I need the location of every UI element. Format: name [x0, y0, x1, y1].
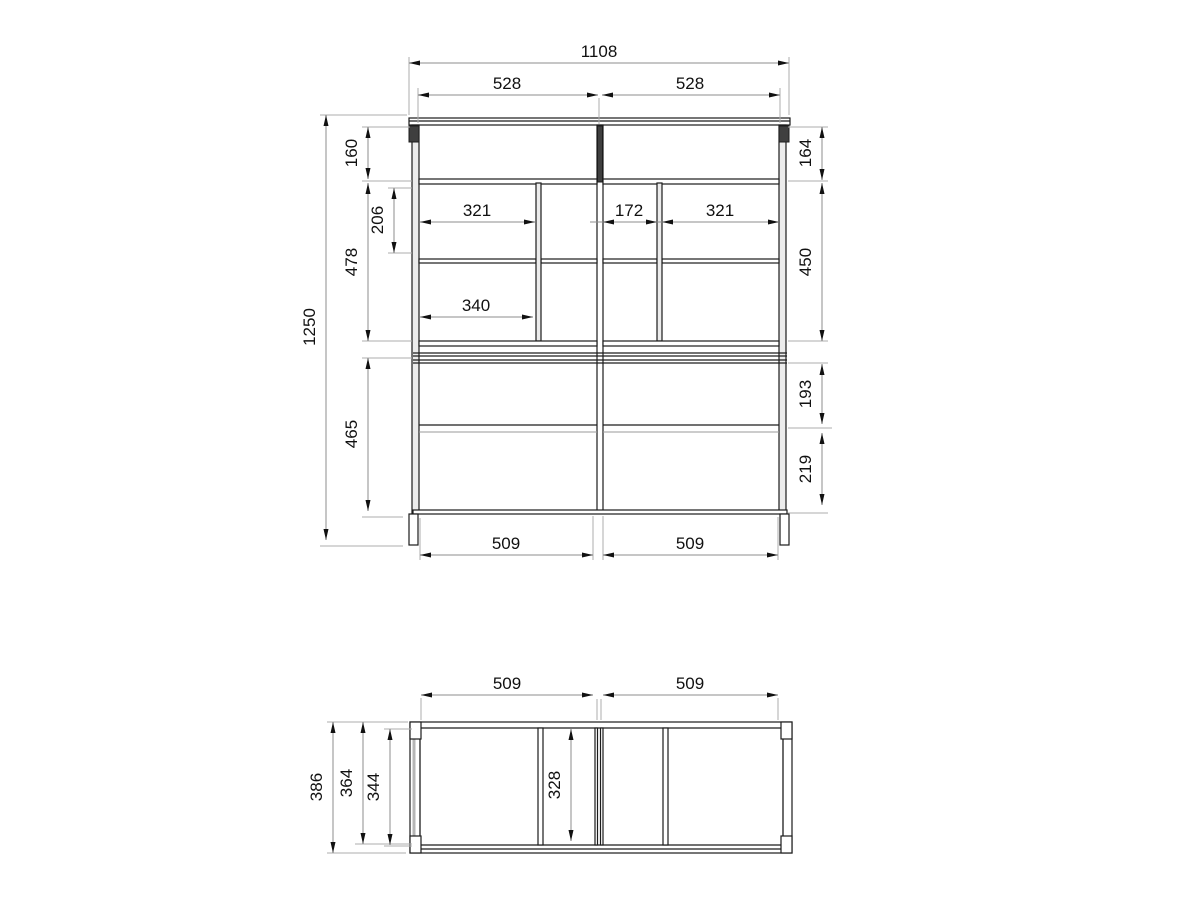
dim-label-overall-height: 1250 — [300, 308, 319, 346]
arrowheads — [324, 61, 825, 558]
dim-label-compartment-depth: 328 — [545, 771, 564, 799]
center-divider — [597, 125, 603, 513]
left-side-panel — [412, 125, 419, 513]
front-dimension-lines — [324, 61, 825, 558]
corner-block — [410, 722, 421, 739]
dim-label-center-compartment-width: 172 — [615, 201, 643, 220]
left-partition — [536, 183, 541, 341]
dim-label-middle-section-height-left: 478 — [342, 248, 361, 276]
dim-label-middle-section-height-right: 450 — [796, 248, 815, 276]
right-top-block — [779, 126, 789, 142]
dim-label-base-width-left: 509 — [492, 534, 520, 553]
left-top-block — [409, 126, 419, 142]
extension-lines-path — [320, 57, 832, 560]
band-shelf-left — [419, 341, 597, 346]
technical-drawing: 1108 528 528 321 172 321 340 509 509 160… — [0, 0, 1204, 903]
dim-label-top-section-height-right: 164 — [796, 139, 815, 167]
mid-shelf-seg — [419, 259, 536, 263]
mid-shelf-seg — [603, 259, 657, 263]
dim-label-base-width-right: 509 — [676, 534, 704, 553]
dim-label-inner-depth-1: 364 — [337, 769, 356, 797]
corner-block — [781, 836, 792, 853]
dim-label-inner-depth-2: 344 — [364, 773, 383, 801]
center-divider-top-fill — [598, 126, 603, 182]
dim-label-left-compartment-width: 321 — [463, 201, 491, 220]
drawing-sheet: 1108 528 528 321 172 321 340 509 509 160… — [0, 0, 1204, 903]
left-partition-top-view — [538, 728, 543, 845]
shelf-left — [419, 179, 597, 184]
front-extension-lines — [320, 57, 832, 560]
shelf-right — [603, 179, 779, 184]
left-foot — [409, 514, 418, 545]
mid-shelf-seg — [541, 259, 597, 263]
front-view: 1108 528 528 321 172 321 340 509 509 160… — [300, 42, 832, 560]
dim-label-overall-width: 1108 — [581, 42, 618, 61]
center-divider-left-panel — [595, 728, 598, 845]
bottom-panel — [413, 510, 787, 514]
band-shelf-right — [603, 341, 779, 346]
dim-label-drawer-height-lower: 219 — [796, 455, 815, 483]
top-view: 509 509 386 364 344 328 — [307, 674, 792, 853]
front-cabinet-structure — [409, 118, 790, 545]
dim-label-left-half-width: 528 — [493, 74, 521, 93]
dim-label-right-compartment-width: 321 — [706, 201, 734, 220]
corner-block — [781, 722, 792, 739]
dim-label-upper-compartment-height: 206 — [368, 206, 387, 234]
dim-label-lower-section-height: 465 — [342, 420, 361, 448]
dim-label-right-half-width: 528 — [676, 74, 704, 93]
center-divider-right-panel — [601, 728, 604, 845]
top-cabinet-structure — [410, 722, 792, 853]
dim-label-shelf-width: 340 — [462, 296, 490, 315]
dim-label-top-half-width-right: 509 — [676, 674, 704, 693]
dim-label-drawer-height-upper: 193 — [796, 380, 815, 408]
dimension-lines-path — [326, 63, 822, 555]
right-foot — [780, 514, 789, 545]
right-partition-top-view — [663, 728, 668, 845]
dim-label-top-section-height-left: 160 — [342, 139, 361, 167]
right-partition — [657, 183, 662, 341]
dim-label-top-half-width-left: 509 — [493, 674, 521, 693]
right-side-panel — [779, 125, 786, 513]
mid-shelf-seg — [662, 259, 779, 263]
dim-label-overall-depth: 386 — [307, 773, 326, 801]
